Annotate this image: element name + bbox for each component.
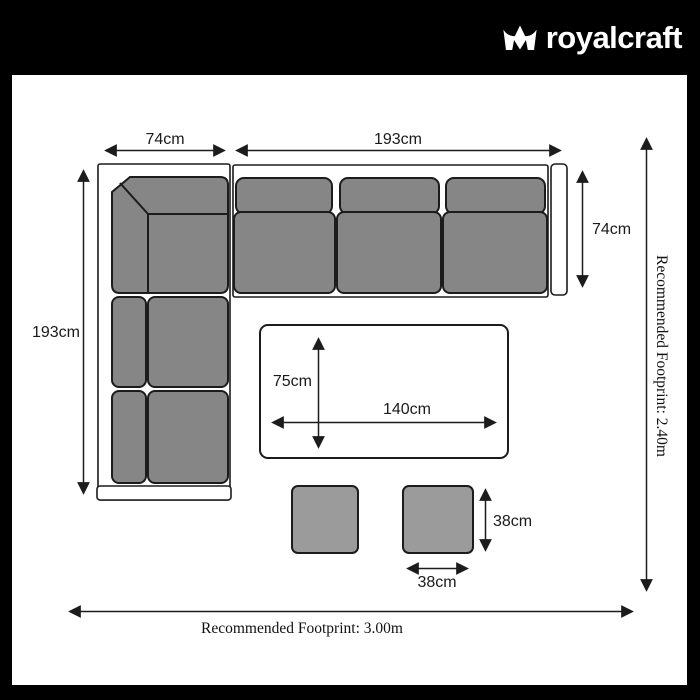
footprint-height-label: Recommended Footprint: 2.40m	[653, 255, 670, 457]
seat-cushion	[234, 212, 335, 293]
stool	[292, 486, 358, 553]
seat-cushion	[443, 212, 547, 293]
dim-label-sofa-depth: 74cm	[592, 221, 631, 238]
footstools: 38cm 38cm	[292, 486, 532, 591]
dim-label-table-length: 140cm	[383, 401, 431, 418]
dim-label-sofa-arm-width: 74cm	[145, 131, 184, 148]
dim-label-table-depth: 75cm	[273, 373, 312, 390]
seat-cushion	[148, 391, 228, 483]
stool	[403, 486, 473, 553]
backrest-cushion	[340, 178, 439, 214]
backrest-cushion	[112, 391, 146, 483]
dim-label-sofa-top-length: 193cm	[374, 131, 422, 148]
sofa-left-section	[97, 164, 231, 500]
backrest-cushion	[236, 178, 332, 214]
dim-label-stool-width: 38cm	[417, 574, 456, 591]
dimension-diagram: 75cm 140cm 38cm 38cm 74cm 193cm 193cm 74…	[0, 0, 700, 700]
sofa-top-section	[233, 164, 567, 297]
sofa-left-base-rail	[97, 486, 231, 500]
backrest-cushion	[446, 178, 545, 214]
seat-cushion	[148, 297, 228, 387]
seat-cushion	[337, 212, 441, 293]
coffee-table: 75cm 140cm	[260, 325, 508, 458]
sofa-armrest	[551, 164, 567, 295]
dim-label-stool-depth: 38cm	[493, 513, 532, 530]
backrest-cushion	[112, 297, 146, 387]
footprint-width-label: Recommended Footprint: 3.00m	[201, 620, 403, 637]
dim-label-sofa-left-length: 193cm	[32, 324, 80, 341]
table-top	[260, 325, 508, 458]
